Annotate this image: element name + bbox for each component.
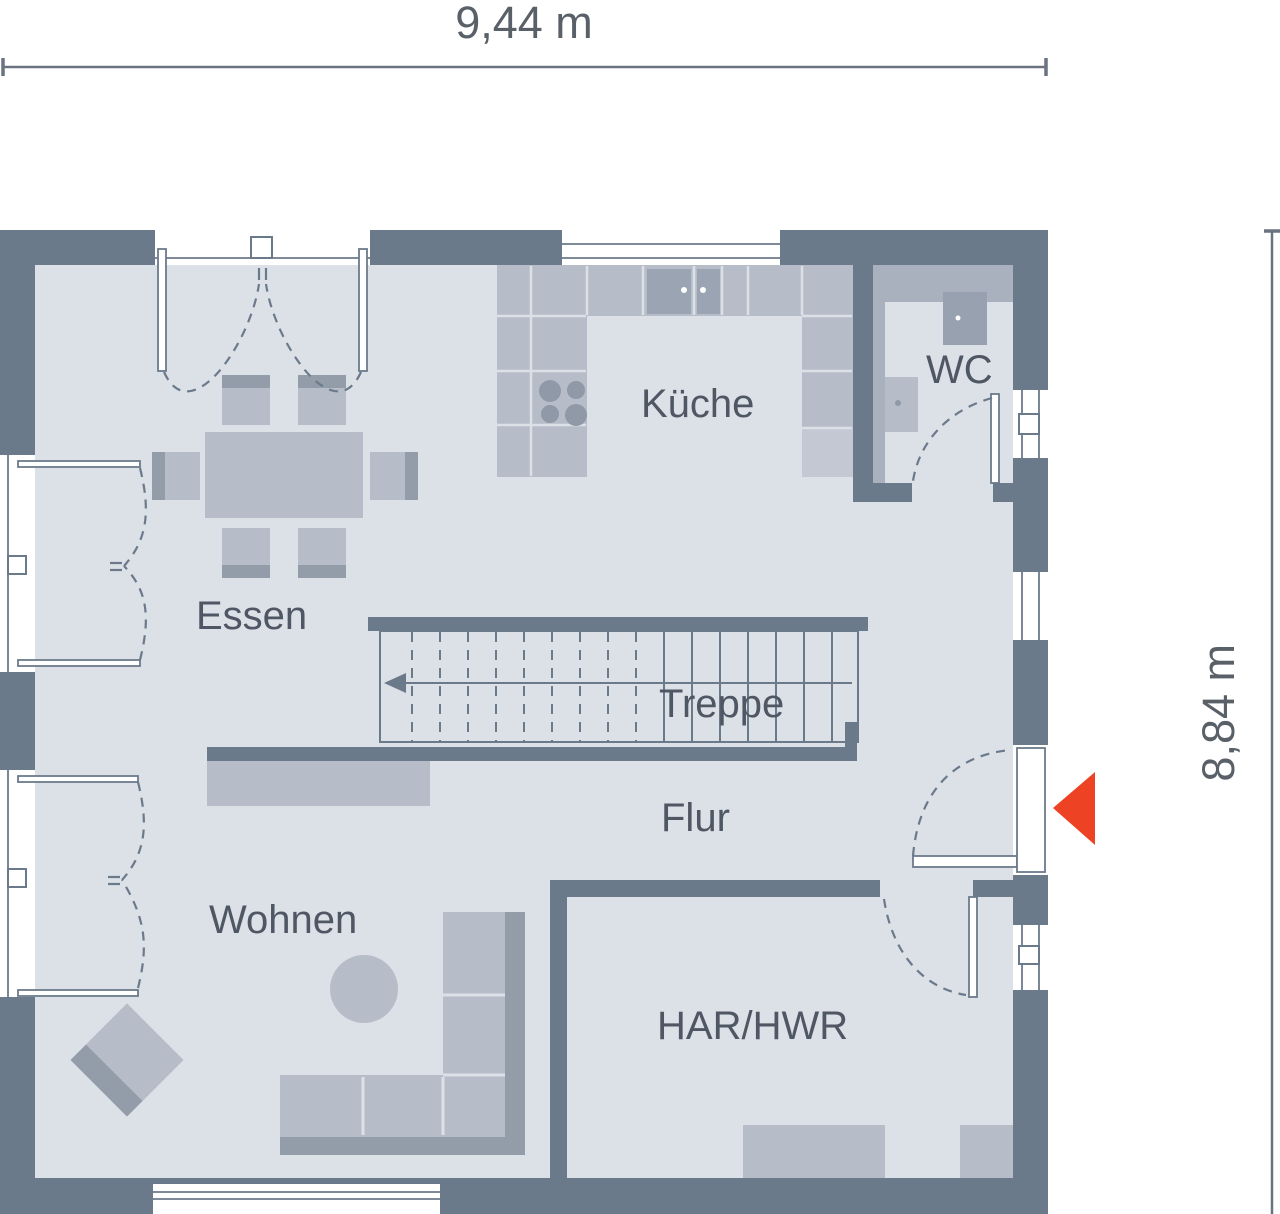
room-label-wohnen: Wohnen: [209, 900, 357, 940]
room-label-flur: Flur: [661, 798, 730, 838]
room-label-har: HAR/HWR: [657, 1006, 848, 1046]
stair-direction-arrow-icon: [384, 673, 406, 693]
dimension-height-label: 8,84 m: [1196, 644, 1241, 782]
sofa-dividers: [363, 995, 505, 1135]
dimension-lines: [2, 58, 1280, 1214]
cooktop-icon: [539, 380, 587, 426]
entrance-arrow-icon: [1053, 772, 1095, 845]
floor-plan: Essen Küche WC Treppe Flur Wohnen HAR/HW…: [0, 0, 1280, 1214]
toilet-detail: [895, 400, 901, 406]
window-frames: [8, 244, 1039, 1199]
kitchen-sink: [647, 269, 720, 314]
room-label-wc: WC: [926, 350, 993, 390]
room-label-kueche: Küche: [641, 384, 754, 424]
basin-detail: [956, 316, 961, 321]
plan-linework: [0, 0, 1280, 1214]
room-label-treppe: Treppe: [659, 684, 784, 724]
room-label-essen: Essen: [196, 596, 307, 636]
staircase: [380, 631, 858, 742]
dimension-width-label: 9,44 m: [0, 0, 1048, 45]
